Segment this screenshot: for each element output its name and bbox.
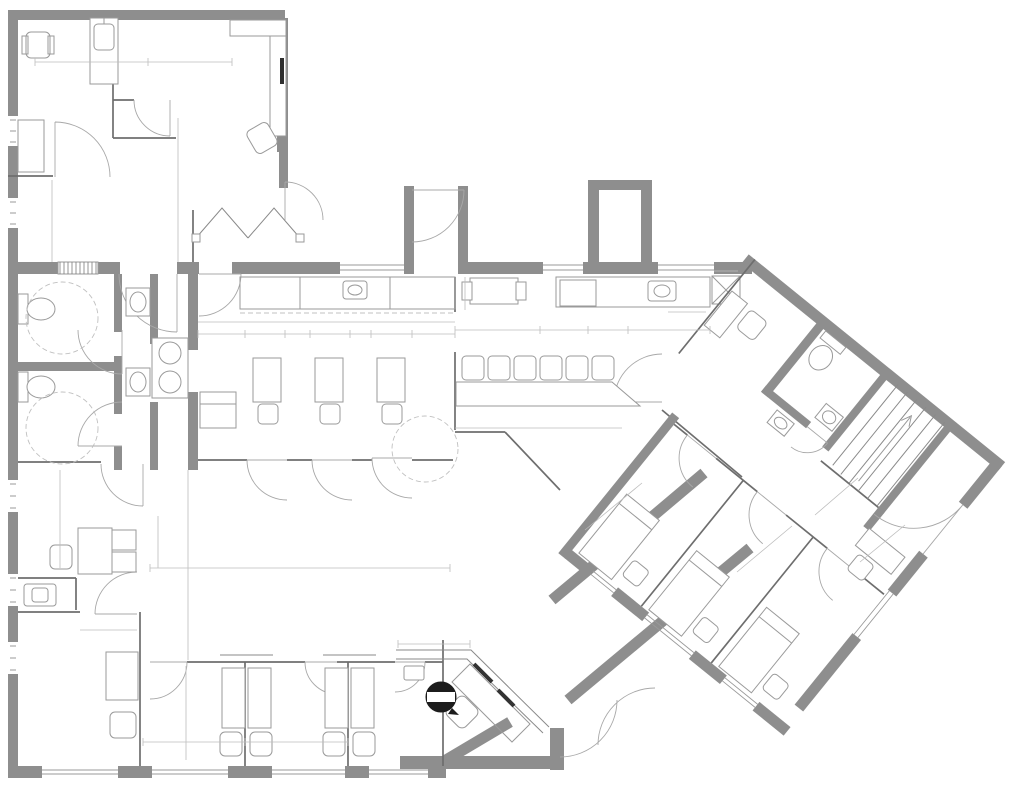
sink-icon (24, 584, 56, 606)
waiting-chairs (462, 356, 614, 380)
office-chair-icon (250, 732, 272, 756)
floor-plan-image (0, 0, 1017, 800)
bed-icon (719, 607, 799, 692)
sink-icon (648, 281, 676, 301)
office-chair-icon (622, 559, 650, 587)
office-chair-icon (320, 404, 340, 424)
office-chair-icon (323, 732, 345, 756)
storage-closet (200, 392, 236, 428)
office-chair-icon (50, 545, 72, 569)
office-chair-icon (762, 673, 790, 701)
office-chair-icon (22, 32, 54, 58)
office-chair-icon (353, 732, 375, 756)
toilet-icon (18, 294, 55, 324)
sink-icon (126, 368, 150, 396)
sink-icon (343, 281, 367, 299)
rotated-wing (527, 254, 1005, 735)
double-sink-icon (152, 338, 188, 398)
office-chair-icon (382, 404, 402, 424)
office-chair-icon (258, 404, 278, 424)
sink-icon (90, 18, 118, 84)
toilet-icon (18, 372, 55, 402)
sink-icon (404, 666, 424, 680)
office-chair-icon (110, 712, 136, 738)
office-chair-icon (692, 616, 720, 644)
door-swings (55, 100, 662, 757)
office-chair-icon (220, 732, 242, 756)
reception-desk (396, 650, 549, 742)
office-chair-icon (736, 309, 768, 341)
floor-plan-svg (0, 0, 1017, 800)
section-callout (426, 682, 459, 715)
sink-icon (126, 288, 150, 316)
